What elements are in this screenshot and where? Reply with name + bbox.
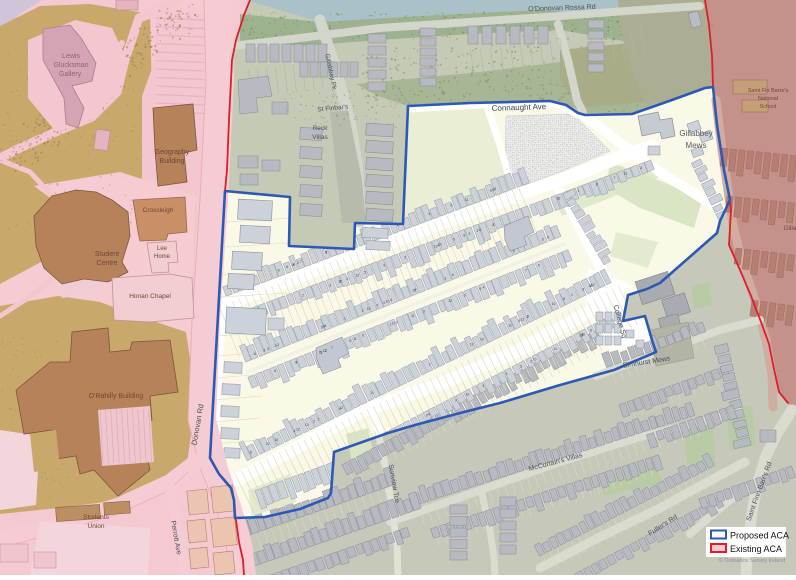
svg-text:11: 11 xyxy=(508,324,512,328)
svg-text:3: 3 xyxy=(469,232,471,236)
svg-text:1: 1 xyxy=(362,309,364,313)
svg-text:Lewis: Lewis xyxy=(62,53,80,60)
svg-text:6: 6 xyxy=(274,369,276,373)
svg-text:© Ordnance Survey Ireland: © Ordnance Survey Ireland xyxy=(719,557,786,564)
svg-text:5: 5 xyxy=(320,351,322,355)
svg-text:2: 2 xyxy=(429,363,431,367)
svg-text:10: 10 xyxy=(552,302,556,306)
svg-text:4: 4 xyxy=(438,243,440,247)
svg-text:School: School xyxy=(760,104,777,110)
svg-text:Building: Building xyxy=(160,158,185,165)
svg-text:6: 6 xyxy=(513,249,515,253)
svg-text:2: 2 xyxy=(530,359,532,363)
svg-text:1: 1 xyxy=(317,417,319,421)
svg-text:12: 12 xyxy=(338,280,342,284)
svg-text:5: 5 xyxy=(323,325,325,329)
svg-text:2: 2 xyxy=(302,294,304,298)
svg-text:Gallery: Gallery xyxy=(59,71,82,78)
svg-text:12: 12 xyxy=(470,342,474,346)
svg-text:3: 3 xyxy=(558,197,560,201)
svg-text:11: 11 xyxy=(353,337,357,341)
svg-text:4: 4 xyxy=(428,412,430,416)
svg-text:Glucksman: Glucksman xyxy=(53,62,88,69)
svg-text:8: 8 xyxy=(547,235,549,239)
svg-text:8: 8 xyxy=(563,297,565,301)
svg-text:5: 5 xyxy=(321,325,323,329)
svg-text:Crossleigh: Crossleigh xyxy=(143,207,174,214)
svg-text:3: 3 xyxy=(520,365,522,369)
svg-text:3: 3 xyxy=(444,276,446,280)
svg-text:4: 4 xyxy=(339,407,341,411)
svg-text:1: 1 xyxy=(344,316,346,320)
svg-text:Gillabbey: Gillabbey xyxy=(679,129,712,138)
svg-text:6: 6 xyxy=(362,334,364,338)
svg-text:10: 10 xyxy=(305,423,309,427)
svg-text:5: 5 xyxy=(538,264,540,268)
svg-text:9: 9 xyxy=(396,320,398,324)
svg-text:Mews: Mews xyxy=(686,141,707,150)
svg-text:8: 8 xyxy=(250,450,252,454)
svg-text:6: 6 xyxy=(452,273,454,277)
svg-text:12: 12 xyxy=(591,283,595,287)
svg-text:Proposed ACA: Proposed ACA xyxy=(730,531,789,541)
svg-text:10: 10 xyxy=(367,307,371,311)
svg-text:6: 6 xyxy=(542,238,544,242)
svg-text:4: 4 xyxy=(483,286,485,290)
svg-text:12: 12 xyxy=(355,273,359,277)
svg-text:3: 3 xyxy=(277,343,279,347)
svg-text:Lee: Lee xyxy=(157,246,168,252)
svg-text:10: 10 xyxy=(480,337,484,341)
svg-text:1: 1 xyxy=(578,189,580,193)
svg-text:Union: Union xyxy=(88,523,105,530)
svg-text:4: 4 xyxy=(325,324,327,328)
svg-text:12: 12 xyxy=(448,299,452,303)
svg-text:3: 3 xyxy=(423,310,425,314)
svg-text:11: 11 xyxy=(624,172,628,176)
svg-text:O'Rahilly Building: O'Rahilly Building xyxy=(89,393,144,400)
svg-text:Students: Students xyxy=(83,514,109,521)
svg-text:8: 8 xyxy=(278,268,280,272)
svg-text:7: 7 xyxy=(525,269,527,273)
svg-text:Villas: Villas xyxy=(312,134,328,141)
svg-text:11: 11 xyxy=(392,322,396,326)
svg-text:Honan Chapel: Honan Chapel xyxy=(129,293,171,300)
svg-text:5: 5 xyxy=(506,372,508,376)
svg-text:10: 10 xyxy=(581,333,585,337)
svg-text:3: 3 xyxy=(404,256,406,260)
svg-text:11: 11 xyxy=(478,228,482,232)
svg-text:4: 4 xyxy=(390,298,392,302)
svg-text:5: 5 xyxy=(325,251,327,255)
svg-text:11: 11 xyxy=(253,352,257,356)
svg-text:1: 1 xyxy=(571,293,573,297)
svg-text:8: 8 xyxy=(463,234,465,238)
svg-text:Centre: Centre xyxy=(96,260,117,267)
svg-text:11: 11 xyxy=(291,263,295,267)
svg-text:11: 11 xyxy=(411,314,415,318)
svg-text:Geography: Geography xyxy=(155,149,190,156)
svg-text:Connaught Ave: Connaught Ave xyxy=(491,102,546,113)
svg-text:2: 2 xyxy=(297,261,299,265)
svg-text:6: 6 xyxy=(347,277,349,281)
svg-text:1: 1 xyxy=(390,323,392,327)
svg-text:4: 4 xyxy=(482,384,484,388)
svg-text:8: 8 xyxy=(479,287,481,291)
svg-text:12: 12 xyxy=(296,427,300,431)
svg-text:7: 7 xyxy=(614,176,616,180)
svg-text:6: 6 xyxy=(286,265,288,269)
svg-text:9: 9 xyxy=(377,303,379,307)
svg-text:11: 11 xyxy=(370,391,374,395)
svg-text:6: 6 xyxy=(464,293,466,297)
svg-text:8: 8 xyxy=(596,182,598,186)
svg-text:Existing ACA: Existing ACA xyxy=(730,544,782,554)
svg-text:7: 7 xyxy=(331,346,333,350)
svg-text:8: 8 xyxy=(494,187,496,191)
svg-text:10: 10 xyxy=(466,392,470,396)
svg-text:1: 1 xyxy=(296,360,298,364)
svg-text:National: National xyxy=(758,96,778,102)
svg-text:12: 12 xyxy=(521,317,525,321)
svg-text:7: 7 xyxy=(300,260,302,264)
svg-text:4: 4 xyxy=(293,429,295,433)
svg-text:5: 5 xyxy=(349,339,351,343)
svg-text:2: 2 xyxy=(527,315,529,319)
svg-text:3: 3 xyxy=(274,344,276,348)
svg-text:10: 10 xyxy=(533,358,537,362)
svg-text:12: 12 xyxy=(266,442,270,446)
svg-text:5: 5 xyxy=(364,270,366,274)
svg-text:3: 3 xyxy=(455,398,457,402)
svg-text:3: 3 xyxy=(313,419,315,423)
svg-text:8: 8 xyxy=(492,188,494,192)
svg-text:10: 10 xyxy=(275,438,279,442)
svg-text:Saint Fin Barre's: Saint Fin Barre's xyxy=(748,88,789,94)
svg-text:6: 6 xyxy=(450,204,452,208)
svg-text:Reck: Reck xyxy=(313,125,329,132)
svg-text:11: 11 xyxy=(554,347,558,351)
svg-text:4: 4 xyxy=(428,212,430,216)
svg-text:5: 5 xyxy=(267,347,269,351)
svg-text:9: 9 xyxy=(414,288,416,292)
svg-text:9: 9 xyxy=(383,263,385,267)
svg-text:9: 9 xyxy=(453,238,455,242)
svg-text:11: 11 xyxy=(465,198,469,202)
svg-text:Home: Home xyxy=(154,254,171,260)
svg-text:Student: Student xyxy=(95,251,119,258)
svg-text:6: 6 xyxy=(264,348,266,352)
svg-text:10: 10 xyxy=(386,299,390,303)
svg-text:6: 6 xyxy=(590,328,592,332)
svg-text:Gilla: Gilla xyxy=(783,225,796,232)
svg-text:3: 3 xyxy=(329,283,331,287)
svg-text:2: 2 xyxy=(493,223,495,227)
svg-text:8: 8 xyxy=(582,288,584,292)
svg-text:8: 8 xyxy=(640,166,642,170)
svg-text:11: 11 xyxy=(323,349,327,353)
